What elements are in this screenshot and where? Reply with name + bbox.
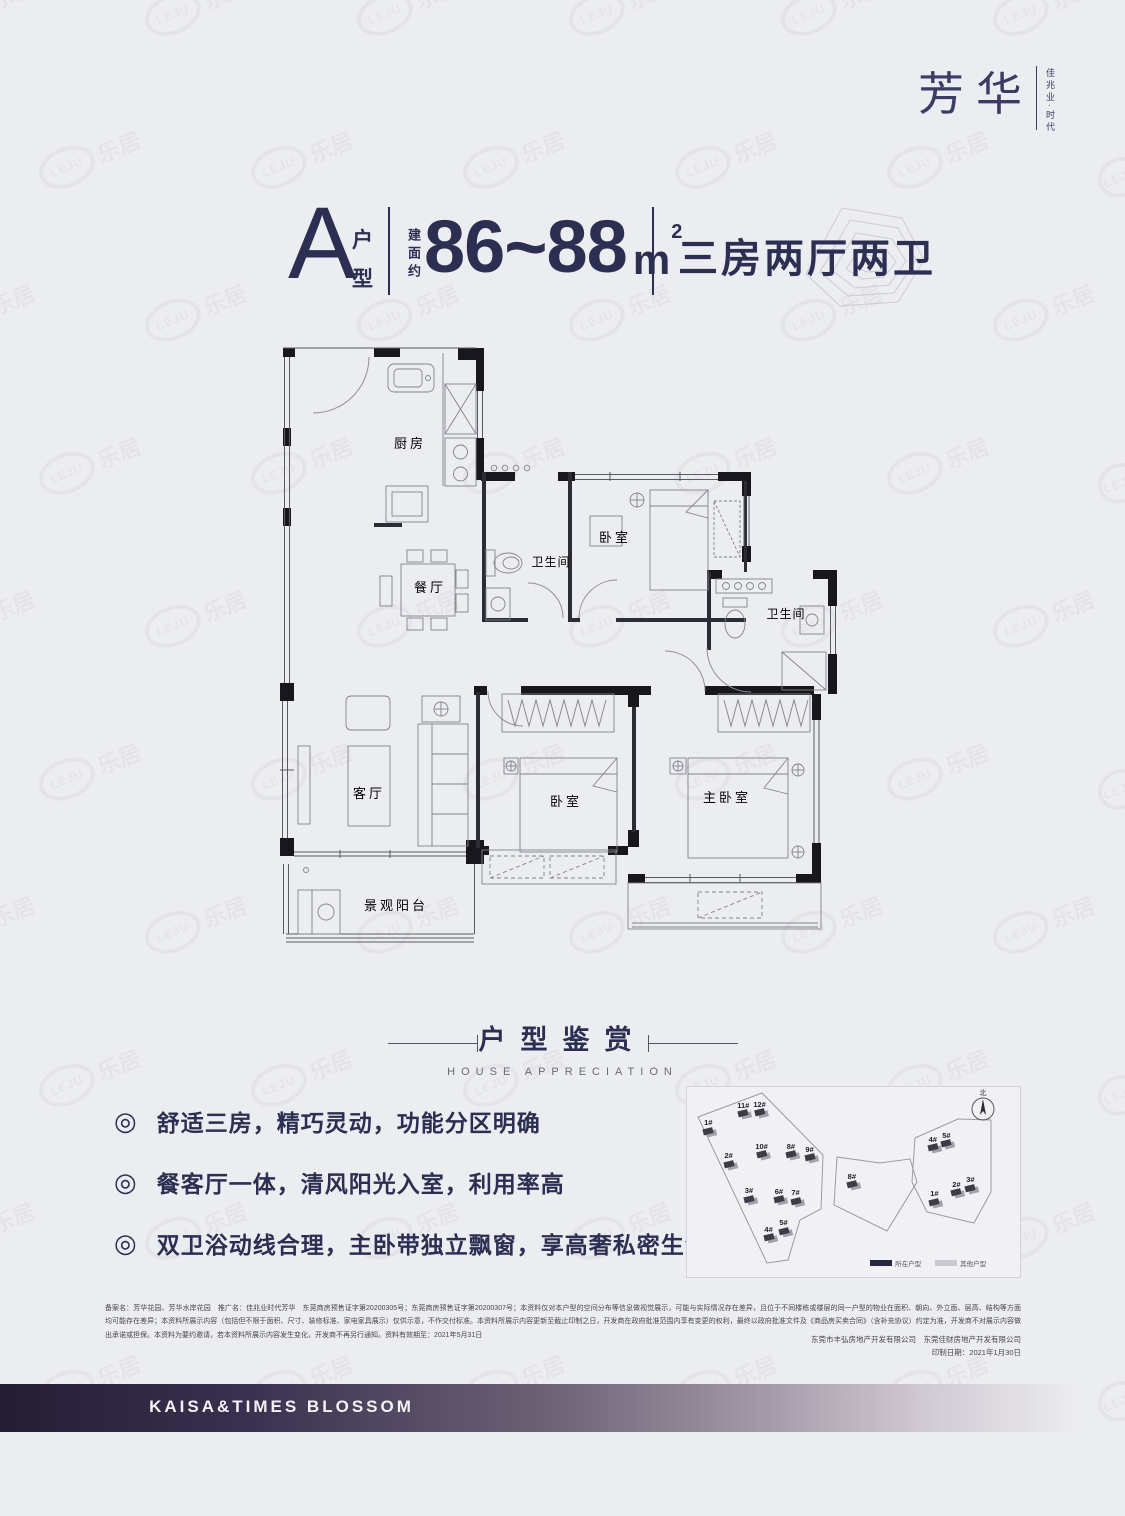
feature-text: 舒适三房，精巧灵动，功能分区明确 [157, 1104, 541, 1138]
leju-watermark: LEJU乐居 [32, 731, 146, 808]
site-building-5#: 5# [941, 1132, 951, 1147]
bullseye-icon: ◎ [114, 1230, 137, 1256]
bullseye-icon: ◎ [114, 1108, 137, 1134]
feature-text: 双卫浴动线合理，主卧带独立飘窗，享高奢私密生活 [157, 1226, 709, 1260]
feature-item: ◎ 餐客厅一体，清风阳光入室，利用率高 [114, 1165, 709, 1199]
developer-info: 东莞市丰弘房地产开发有限公司 东莞佳财房地产开发有限公司 印制日期：2021年1… [105, 1334, 1021, 1360]
site-building-1#: 1# [929, 1190, 939, 1205]
area-prefix: 建面约 [404, 228, 423, 282]
unit-label-top: 户 [352, 224, 373, 254]
unit-letter: A [288, 192, 356, 294]
leju-watermark: LEJU乐居 [1087, 430, 1125, 521]
leju-watermark: LEJU乐居 [880, 731, 994, 808]
site-building-7#: 7# [791, 1189, 801, 1204]
room-labels: 厨房 餐厅 卫生间 卧室 卫生间 客厅 卧室 主卧室 景观阳台 [353, 436, 806, 913]
developer-companies: 东莞市丰弘房地产开发有限公司 东莞佳财房地产开发有限公司 [105, 1334, 1021, 1347]
unit-label: 户 型 [352, 224, 373, 293]
unit-title-row: A 户 型 建面约 86~88 m 2 三房两厅两卫 [0, 0, 1125, 320]
room-label-bedroom-2: 卧室 [550, 794, 582, 809]
leju-watermark: LEJU乐居 [986, 884, 1100, 961]
legend-swatch-light [935, 1260, 957, 1266]
site-building-10#: 10# [755, 1143, 768, 1158]
room-label-living: 客厅 [353, 786, 385, 801]
leju-watermark: LEJU乐居 [138, 884, 252, 961]
bottom-brand-bar: KAISA&TIMES BLOSSOM [0, 1384, 1125, 1432]
leju-watermark: LEJU乐居 [138, 578, 252, 655]
unit-label-bottom: 型 [352, 263, 373, 293]
site-building-2#: 2# [951, 1181, 961, 1196]
site-building-5#: 5# [779, 1220, 789, 1235]
site-building-2#: 2# [724, 1152, 734, 1167]
site-building-3#: 3# [965, 1176, 975, 1191]
room-label-balcony: 景观阳台 [364, 898, 428, 913]
furniture [298, 353, 826, 934]
room-label-dining: 餐厅 [414, 580, 446, 595]
site-building-12#: 12# [753, 1101, 766, 1116]
legend-label: 所在户型 [895, 1258, 921, 1268]
room-label-bath-1: 卫生间 [531, 555, 570, 569]
leju-watermark: LEJU乐居 [986, 578, 1100, 655]
site-building-9#: 9# [805, 1146, 815, 1161]
brand-name-en: KAISA&TIMES BLOSSOM [0, 1397, 563, 1417]
leju-watermark: LEJU乐居 [880, 425, 994, 502]
section-title-en: HOUSE APPRECIATION [0, 1066, 1125, 1078]
site-building-11#: 11# [737, 1102, 749, 1117]
title-divider [652, 207, 654, 295]
legend-other-unit: 其他户型 [935, 1258, 986, 1268]
room-layout-text: 三房两厅两卫 [678, 226, 936, 284]
room-label-bedroom-top: 卧室 [599, 530, 631, 545]
feature-item: ◎ 舒适三房，精巧灵动，功能分区明确 [114, 1104, 709, 1138]
leju-watermark: LEJU乐居 [32, 425, 146, 502]
site-plan-map: 北 1#11#12#2#10#8#9#3#6#7#4#5#8#4#5#2#3#1… [686, 1086, 1021, 1278]
site-building-8#: 8# [847, 1173, 857, 1188]
room-label-master-bedroom: 主卧室 [703, 790, 751, 805]
area-number: 86~88 [424, 210, 627, 284]
site-buildings-layer: 1#11#12#2#10#8#9#3#6#7#4#5#8#4#5#2#3#1# [687, 1087, 1020, 1277]
floorplan-drawing: 厨房 餐厅 卫生间 卧室 卫生间 客厅 卧室 主卧室 景观阳台 [270, 340, 850, 960]
leju-watermark: LEJU乐居 [1087, 736, 1125, 827]
feature-item: ◎ 双卫浴动线合理，主卧带独立飘窗，享高奢私密生活 [114, 1226, 709, 1260]
site-building-4#: 4# [764, 1226, 774, 1241]
site-building-8#: 8# [786, 1143, 796, 1158]
area-value-row: 86~88 m 2 [424, 210, 682, 284]
leju-watermark: LEJU乐居 [0, 884, 41, 961]
title-divider [388, 207, 390, 295]
feature-text: 餐客厅一体，清风阳光入室，利用率高 [157, 1165, 565, 1199]
room-label-bath-2: 卫生间 [766, 607, 805, 621]
legend-swatch-dark [870, 1260, 892, 1266]
legend-label: 其他户型 [960, 1258, 986, 1268]
room-label-kitchen: 厨房 [394, 436, 426, 451]
section-title-cn: 户型鉴赏 [0, 1018, 1125, 1057]
section-line-right [648, 1043, 738, 1044]
windows [280, 348, 836, 942]
site-building-3#: 3# [744, 1187, 754, 1202]
section-header: 户型鉴赏 HOUSE APPRECIATION [0, 1018, 1125, 1078]
leju-watermark: LEJU乐居 [0, 1190, 41, 1267]
map-legend: 所在户型 其他户型 [870, 1258, 986, 1268]
feature-list: ◎ 舒适三房，精巧灵动，功能分区明确 ◎ 餐客厅一体，清风阳光入室，利用率高 ◎… [114, 1104, 709, 1287]
leju-watermark: LEJU乐居 [0, 578, 41, 655]
door-arcs [313, 357, 751, 726]
section-line-left [388, 1043, 478, 1044]
site-building-4#: 4# [928, 1136, 938, 1151]
legend-current-unit: 所在户型 [870, 1258, 921, 1268]
site-building-1#: 1# [703, 1119, 713, 1134]
section-tick-left [477, 1035, 478, 1052]
bullseye-icon: ◎ [114, 1169, 137, 1195]
site-building-6#: 6# [774, 1188, 784, 1203]
print-date: 印制日期：2021年1月30日 [105, 1347, 1021, 1360]
floorplan: 厨房 餐厅 卫生间 卧室 卫生间 客厅 卧室 主卧室 景观阳台 [270, 340, 850, 960]
